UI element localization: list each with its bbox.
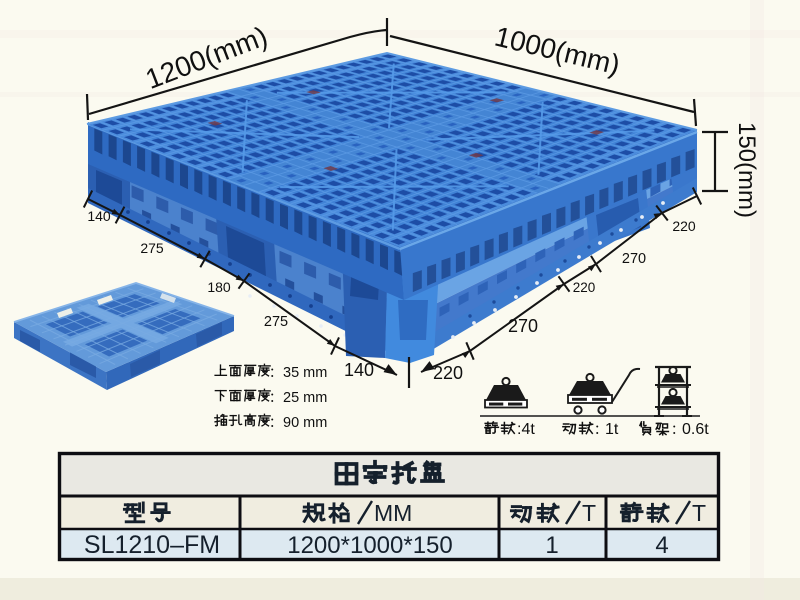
svg-text:1200*1000*150: 1200*1000*150 (287, 532, 453, 559)
svg-text:T: T (582, 500, 596, 526)
svg-text:220: 220 (433, 363, 463, 383)
svg-text:275: 275 (264, 314, 288, 330)
svg-text:：: ： (269, 390, 282, 405)
svg-text:1t: 1t (605, 421, 619, 438)
svg-text:270: 270 (508, 316, 538, 336)
svg-text:：: ： (269, 365, 282, 380)
svg-text:180: 180 (207, 279, 231, 295)
svg-text:220: 220 (672, 218, 696, 234)
svg-text:4: 4 (655, 532, 668, 559)
svg-text:220: 220 (573, 280, 596, 295)
svg-text:：: ： (269, 415, 282, 430)
svg-text:270: 270 (622, 251, 646, 267)
svg-text:25 mm: 25 mm (283, 390, 327, 406)
svg-text:1: 1 (545, 532, 558, 559)
svg-text:35 mm: 35 mm (283, 365, 327, 381)
svg-text:SL1210–FM: SL1210–FM (84, 531, 220, 559)
svg-text:T: T (692, 500, 706, 526)
svg-text::4t: :4t (517, 421, 535, 438)
svg-text:90 mm: 90 mm (283, 415, 327, 431)
svg-text:MM: MM (374, 500, 412, 526)
svg-text:140: 140 (344, 360, 374, 380)
svg-text:140: 140 (87, 208, 111, 224)
svg-text:275: 275 (140, 240, 164, 256)
svg-text:0.6t: 0.6t (682, 421, 709, 438)
svg-text:150(mm): 150(mm) (733, 122, 760, 218)
